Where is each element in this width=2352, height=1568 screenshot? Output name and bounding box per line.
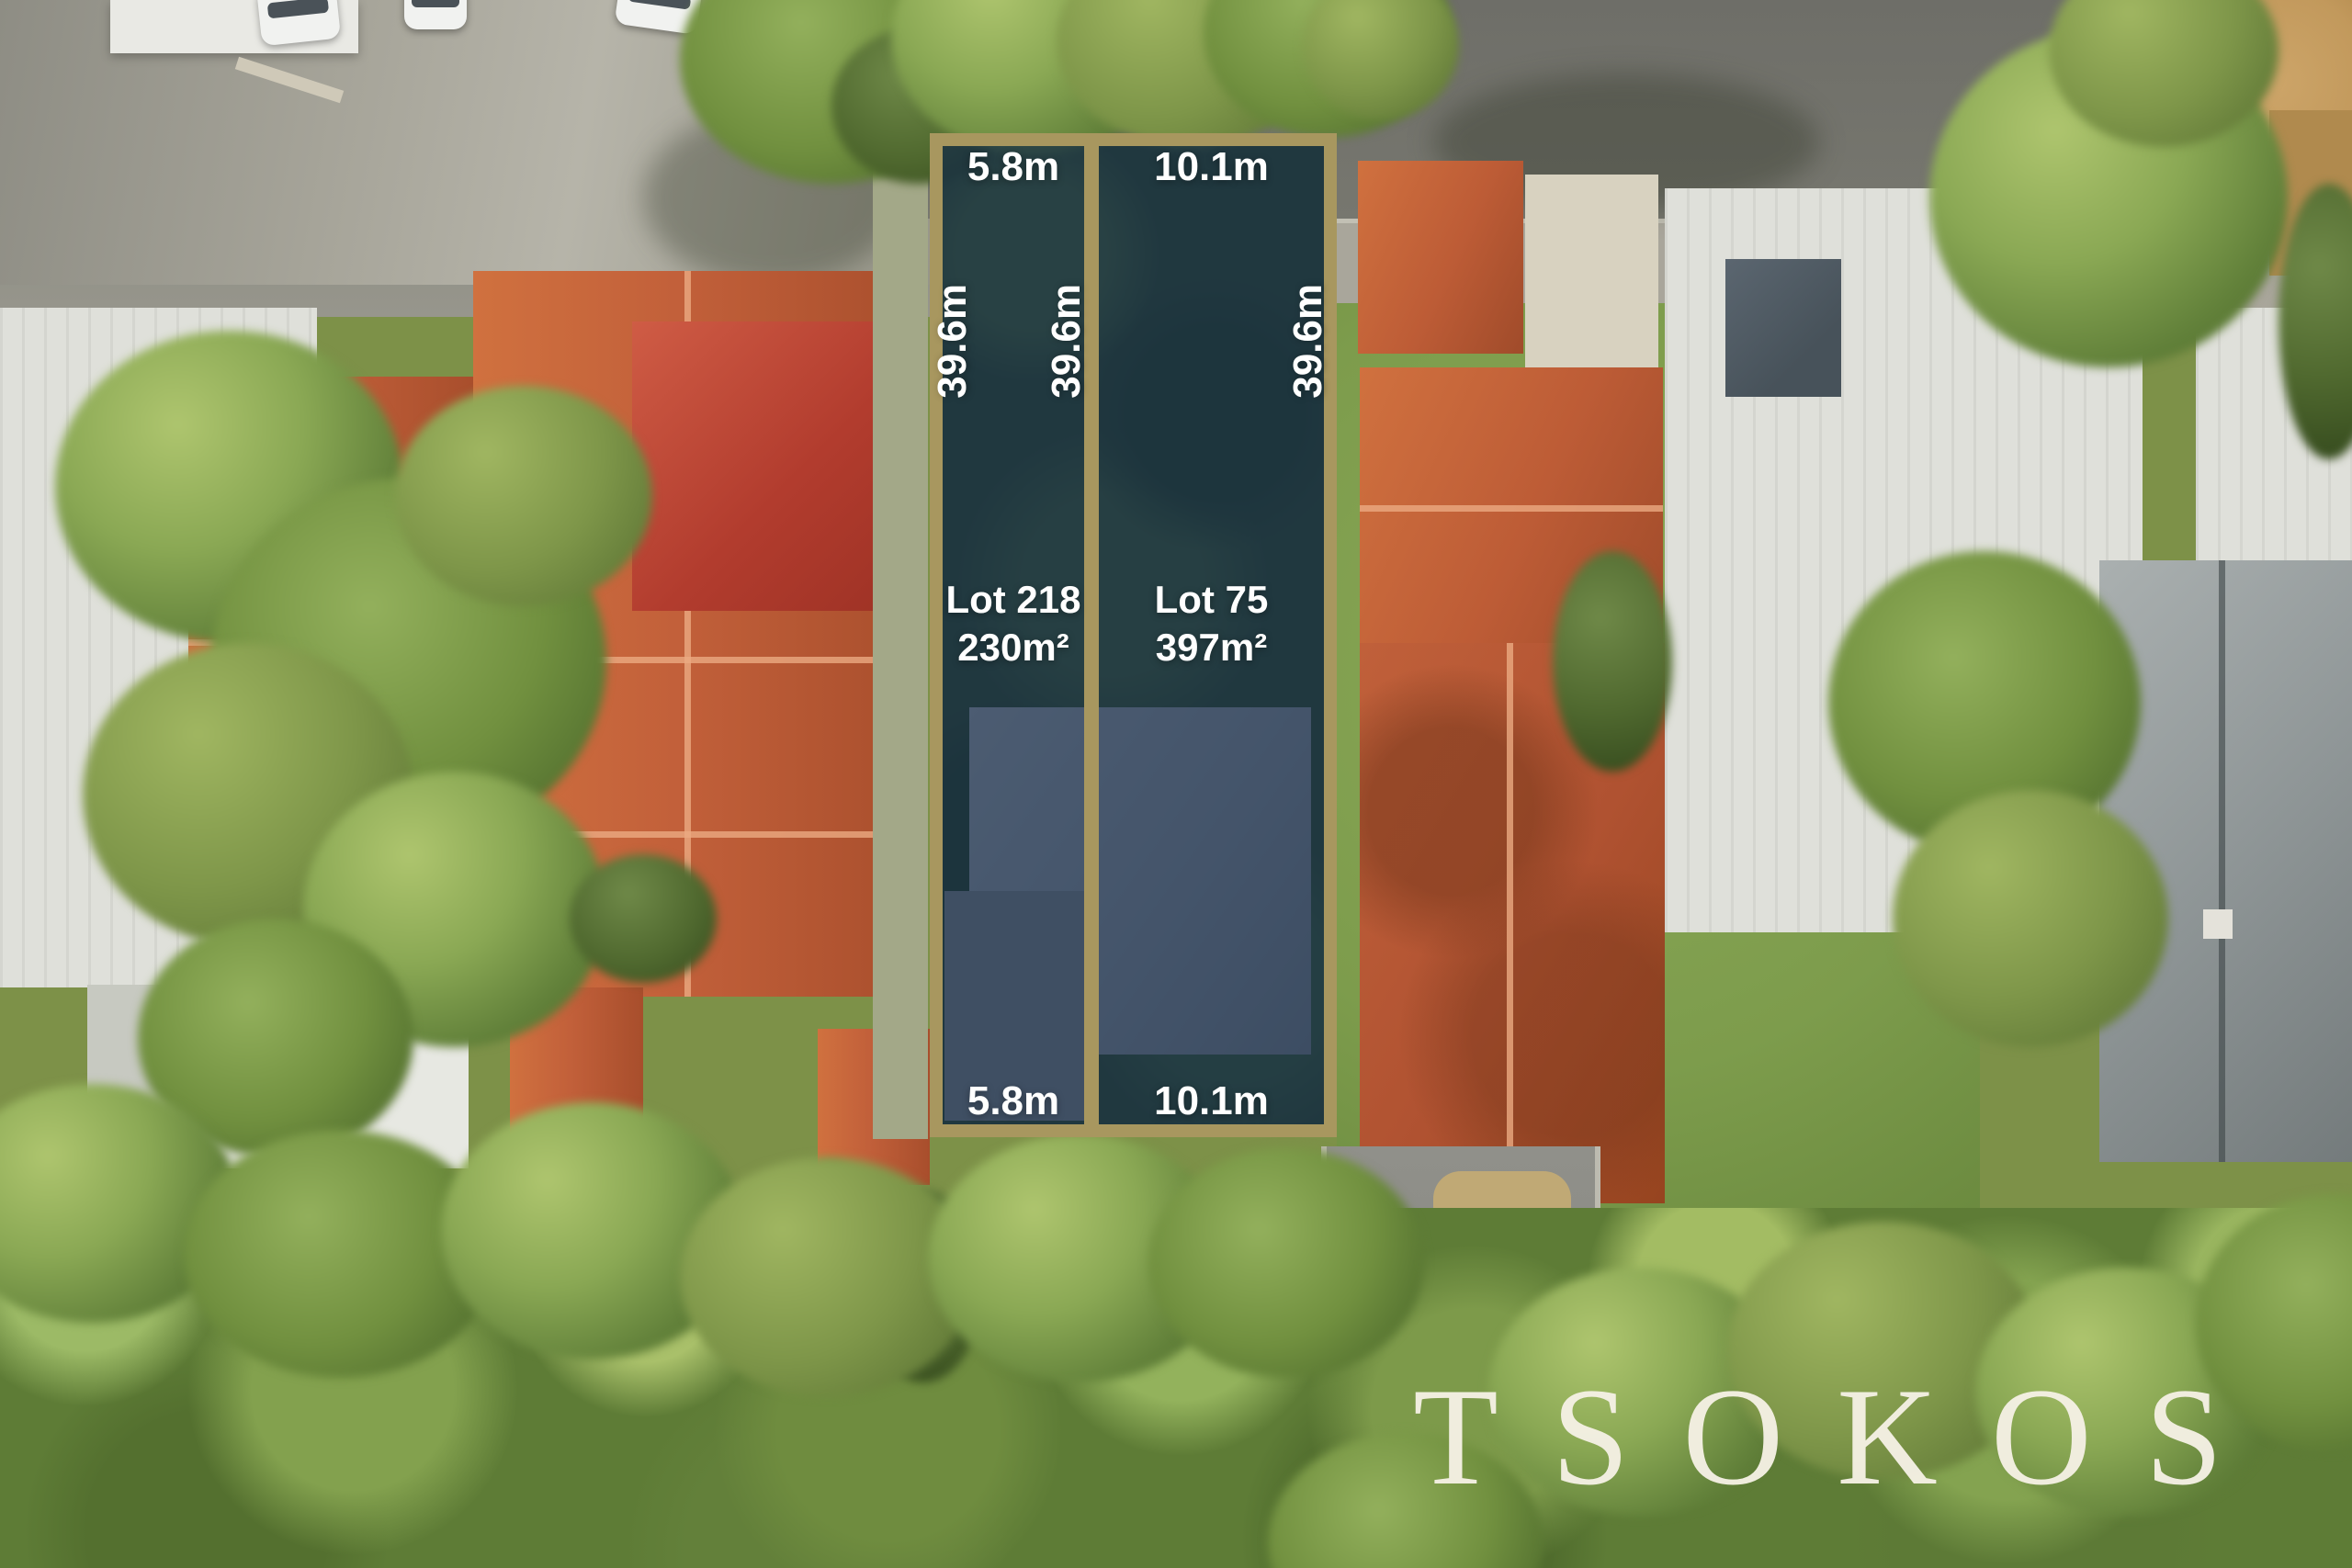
lot-75-frontage-top-label: 10.1m bbox=[1099, 146, 1324, 188]
lot-75-parcel: 10.1m 39.6m Lot 75 397m² 10.1m bbox=[1099, 146, 1324, 1124]
tsokos-watermark: TSOKOS bbox=[1413, 1367, 2276, 1506]
lot-75-title: Lot 75 397m² bbox=[1099, 576, 1324, 671]
lot-218-area: 230m² bbox=[943, 624, 1084, 671]
parked-car bbox=[404, 0, 467, 29]
paved-courtyard bbox=[1525, 175, 1658, 381]
tree bbox=[395, 386, 652, 606]
canopy-tree bbox=[1148, 1148, 1424, 1378]
lot-218-name: Lot 218 bbox=[943, 576, 1084, 624]
chimney bbox=[2203, 909, 2233, 939]
lot-75-name: Lot 75 bbox=[1099, 576, 1324, 624]
tree-right bbox=[1893, 790, 2168, 1047]
lot-218-depth-right-label: 39.6m bbox=[1046, 284, 1088, 399]
house-roof-terracotta-right-front bbox=[1358, 161, 1523, 354]
boundary-fence bbox=[873, 138, 928, 1139]
house-roof-slate-hip bbox=[1725, 259, 1841, 397]
lot-218-title: Lot 218 230m² bbox=[943, 576, 1084, 671]
lot-218-depth-left-label: 39.6m bbox=[932, 284, 974, 399]
lot-218-frontage-top-label: 5.8m bbox=[943, 146, 1084, 188]
lot-75-depth-right-label: 39.6m bbox=[1287, 284, 1329, 399]
lot-218-frontage-bottom-label: 5.8m bbox=[943, 1080, 1084, 1122]
lot-218-parcel: 5.8m 39.6m 39.6m Lot 218 230m² 5.8m bbox=[943, 146, 1084, 1124]
lot-75-frontage-bottom-label: 10.1m bbox=[1099, 1080, 1324, 1122]
parked-car bbox=[256, 0, 341, 46]
tree bbox=[570, 854, 717, 983]
cypress-tree bbox=[1553, 551, 1672, 772]
lot-boundary-overlay: 5.8m 39.6m 39.6m Lot 218 230m² 5.8m 10.1… bbox=[930, 133, 1337, 1137]
lot-75-area: 397m² bbox=[1099, 624, 1324, 671]
aerial-photo: 5.8m 39.6m 39.6m Lot 218 230m² 5.8m 10.1… bbox=[0, 0, 2352, 1568]
